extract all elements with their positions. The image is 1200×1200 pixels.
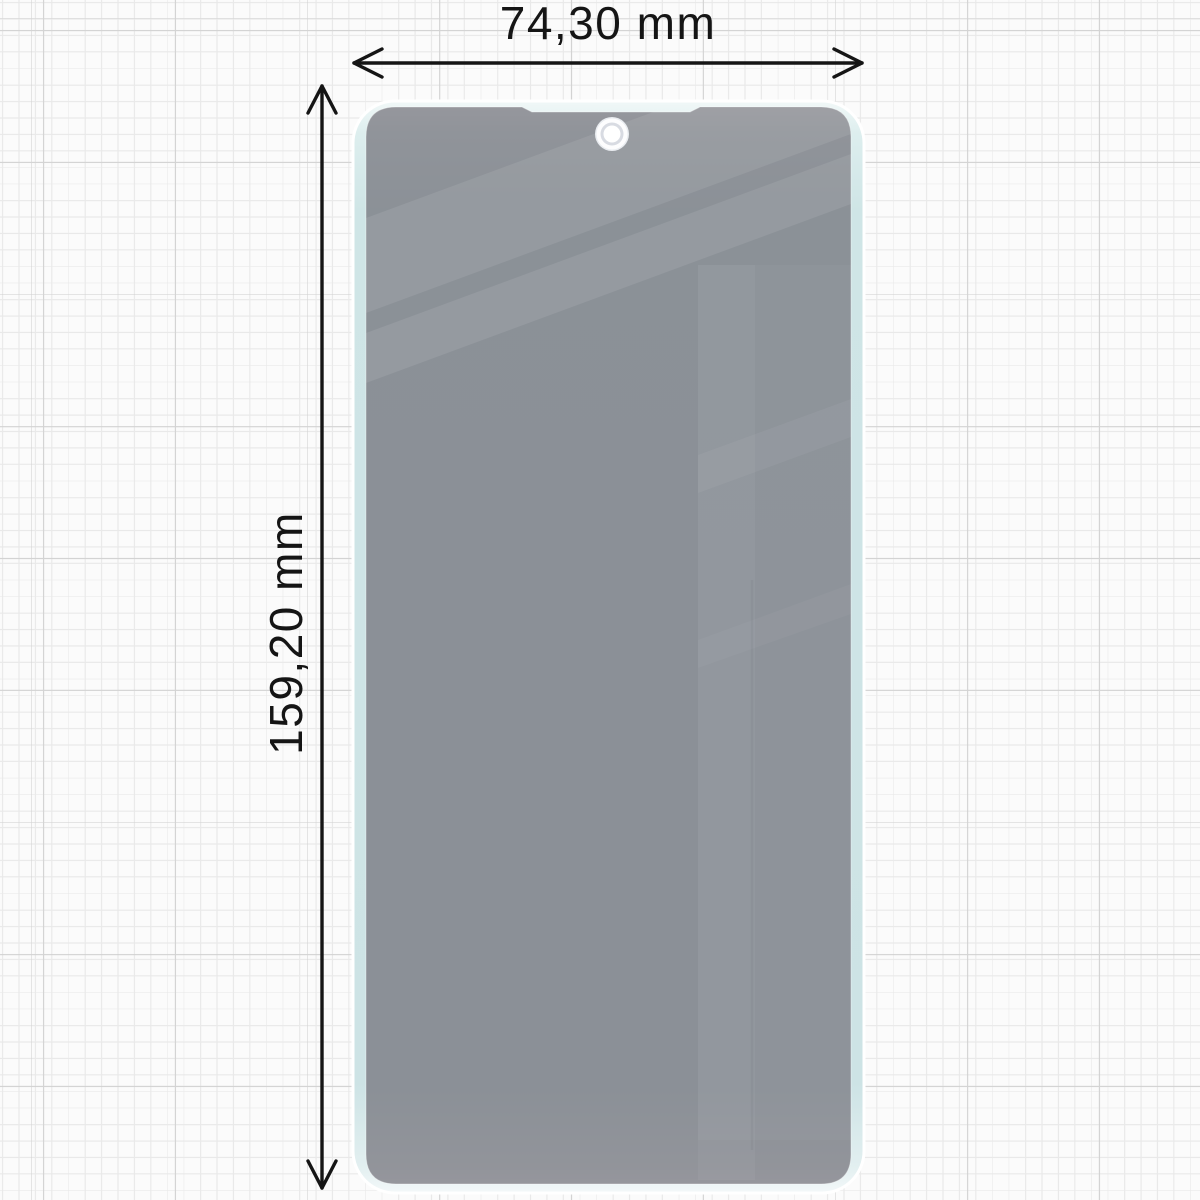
width-dimension-arrow	[354, 49, 862, 77]
camera-cutout-icon	[595, 117, 629, 151]
height-dimension-label: 159,20 mm	[256, 408, 316, 858]
width-dimension-label: 74,30 mm	[383, 0, 833, 46]
graph-paper-background: 74,30 mm 159,20 mm	[0, 0, 1200, 1200]
screen-protector-illustration	[0, 0, 1200, 1200]
